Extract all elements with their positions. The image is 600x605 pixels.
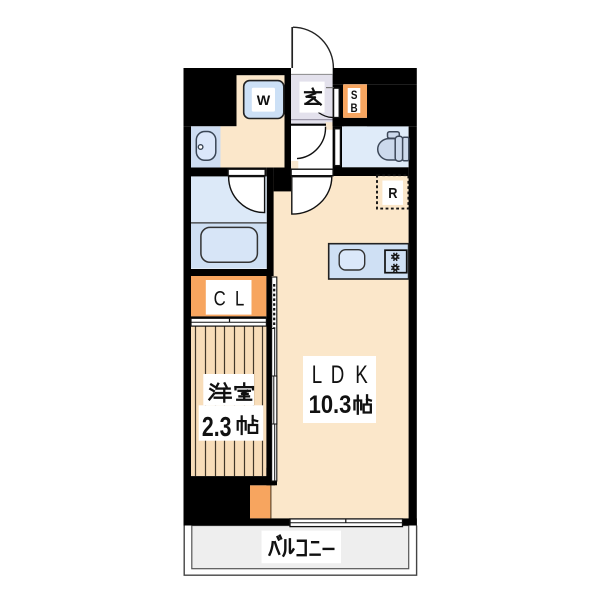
svg-text:K: K [355,360,368,388]
svg-text:W: W [257,93,271,109]
svg-text:L: L [312,360,322,388]
svg-text:B: B [351,102,358,115]
svg-text:10.3: 10.3 [309,391,352,419]
svg-text:C: C [214,288,226,311]
svg-text:R: R [388,184,397,201]
svg-text:S: S [351,89,358,102]
svg-text:D: D [331,360,345,388]
svg-text:L: L [235,288,245,311]
svg-text:2.3: 2.3 [202,411,232,443]
